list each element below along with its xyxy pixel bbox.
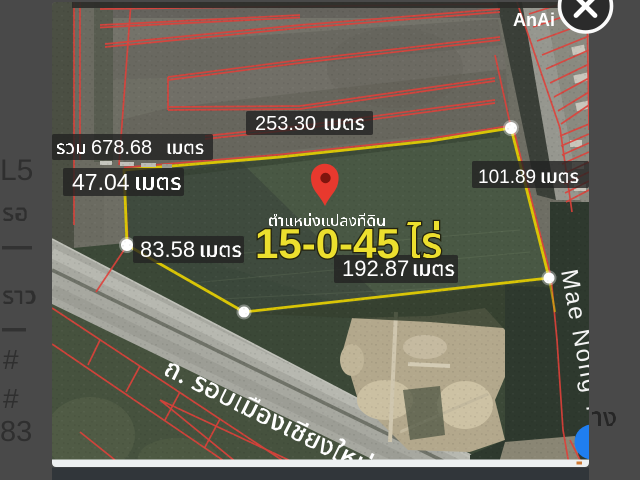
svg-text:253.30: 253.30: [255, 113, 316, 135]
svg-text:678.68: 678.68: [91, 137, 152, 159]
svg-text:83: 83: [0, 416, 32, 448]
svg-text:101.89: 101.89: [478, 167, 536, 188]
svg-text:83.58: 83.58: [140, 237, 195, 262]
svg-text:47.04: 47.04: [72, 169, 130, 195]
svg-text:AnAi: AnAi: [513, 10, 555, 30]
svg-text:L5: L5: [0, 154, 33, 187]
svg-text:#: #: [3, 344, 19, 375]
svg-text:15-0-45: 15-0-45: [255, 220, 400, 267]
svg-text:#: #: [3, 383, 19, 414]
